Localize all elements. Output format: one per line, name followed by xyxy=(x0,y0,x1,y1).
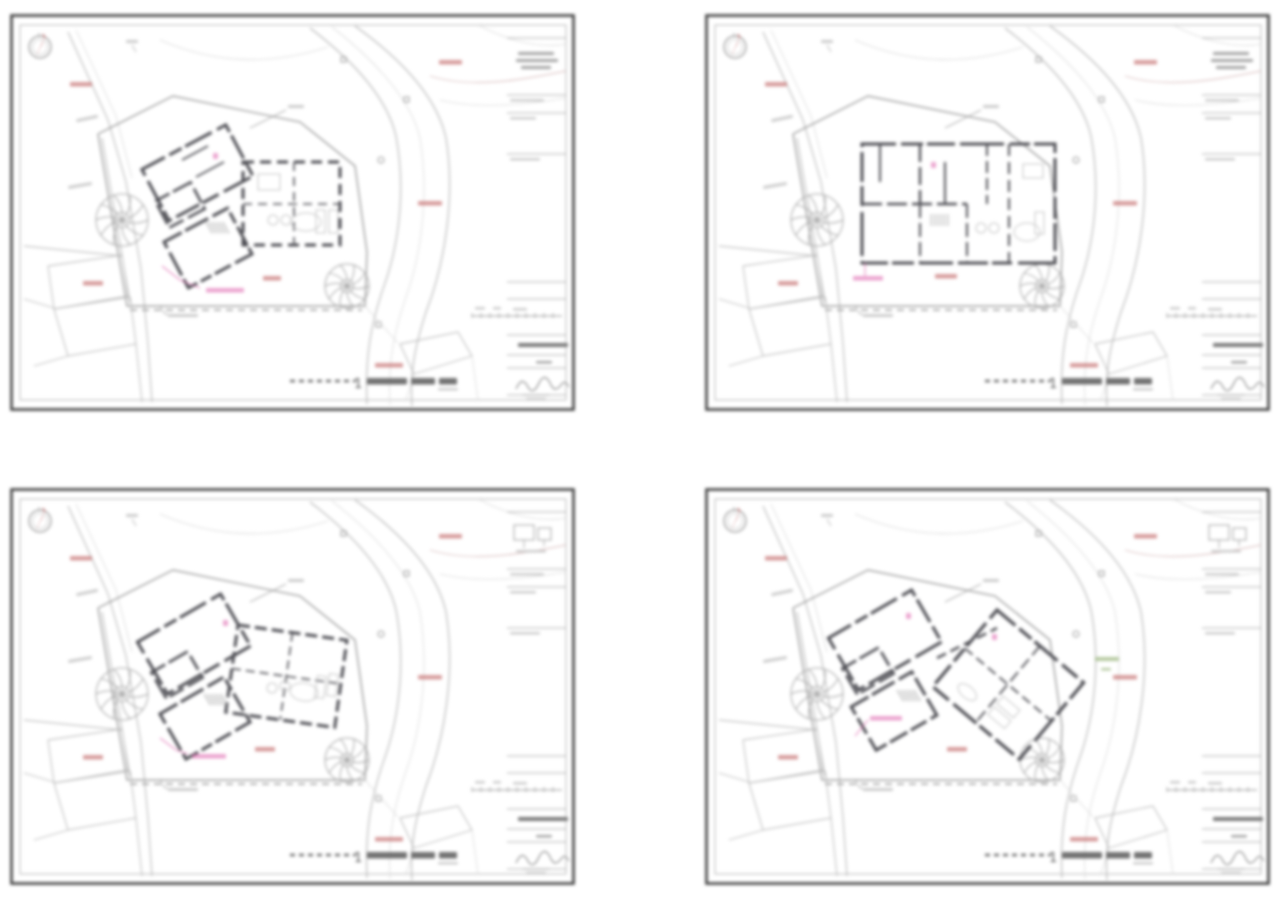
site-plan-drawing: 1 xyxy=(705,14,1270,411)
svg-text:1: 1 xyxy=(1049,377,1057,392)
site-plan-drawing: 1 xyxy=(10,488,575,885)
plan-sheet-3[interactable]: 1 xyxy=(10,488,575,885)
tree-icon xyxy=(1020,264,1064,308)
building-floor-plan xyxy=(828,525,1246,759)
building-floor-plan xyxy=(142,52,558,293)
svg-text:1: 1 xyxy=(354,851,362,866)
tree-icon xyxy=(96,194,148,246)
plan-sheet-4[interactable]: 1 xyxy=(705,488,1270,885)
site-base-drawing: 1 xyxy=(707,490,1269,884)
plan-sheet-1[interactable]: 1 xyxy=(10,14,575,411)
plan-comparison-grid: 1 1 1 1 xyxy=(0,0,1280,899)
tree-icon xyxy=(791,194,843,246)
tree-icon xyxy=(325,264,369,308)
site-base-drawing: 1 xyxy=(12,16,574,410)
tree-icon xyxy=(325,738,369,782)
north-arrow-icon xyxy=(29,507,51,532)
tree-icon xyxy=(1020,738,1064,782)
plan-sheet-2[interactable]: 1 xyxy=(705,14,1270,411)
building-floor-plan xyxy=(853,52,1253,281)
north-arrow-icon xyxy=(724,33,746,58)
svg-text:1: 1 xyxy=(354,377,362,392)
tree-icon xyxy=(96,668,148,720)
north-arrow-icon xyxy=(29,33,51,58)
site-plan-drawing: 1 xyxy=(705,488,1270,885)
site-base-drawing: 1 xyxy=(707,16,1269,410)
site-plan-drawing: 1 xyxy=(10,14,575,411)
svg-text:1: 1 xyxy=(1049,851,1057,866)
building-floor-plan xyxy=(137,525,551,759)
tree-icon xyxy=(791,668,843,720)
north-arrow-icon xyxy=(724,507,746,532)
